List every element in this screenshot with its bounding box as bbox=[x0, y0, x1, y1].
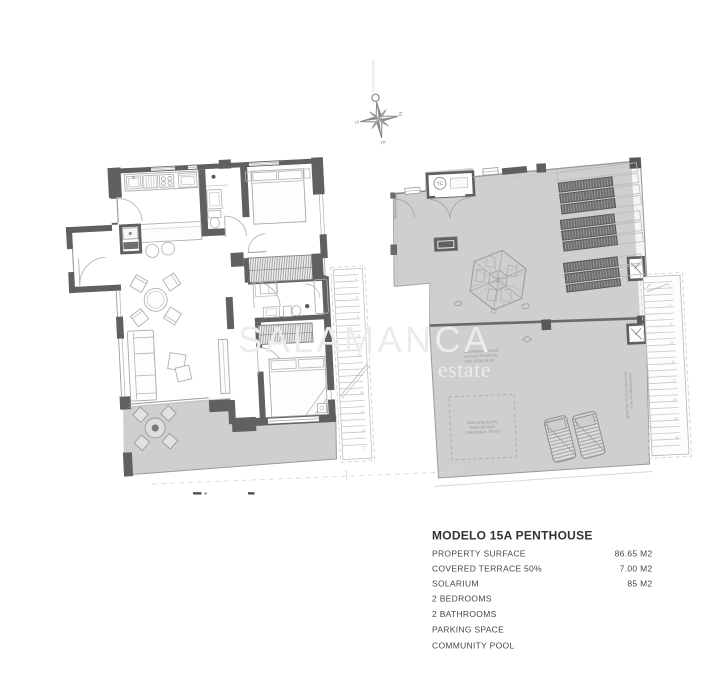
svg-text:COMMUNITY POOL: COMMUNITY POOL bbox=[432, 641, 514, 651]
svg-text:27: 27 bbox=[362, 445, 366, 449]
svg-text:estate: estate bbox=[438, 357, 491, 382]
svg-text:11: 11 bbox=[670, 341, 674, 345]
svg-text:21: 21 bbox=[360, 409, 364, 413]
svg-text:PARKING SPACE: PARKING SPACE bbox=[432, 625, 504, 635]
svg-text:N: N bbox=[396, 112, 402, 117]
svg-text:SALAMANCA: SALAMANCA bbox=[238, 319, 492, 360]
svg-text:MODELO 15A PENTHOUSE: MODELO 15A PENTHOUSE bbox=[432, 529, 593, 543]
svg-text:PROPERTY SURFACE: PROPERTY SURFACE bbox=[432, 549, 526, 559]
svg-text:26: 26 bbox=[675, 435, 679, 439]
svg-text:COVERED TERRACE 50%: COVERED TERRACE 50% bbox=[432, 564, 542, 574]
svg-text:85 M2: 85 M2 bbox=[627, 579, 652, 589]
svg-text:SOLARIUM: SOLARIUM bbox=[432, 579, 479, 589]
svg-text:17: 17 bbox=[672, 378, 676, 382]
svg-text:86.65 M2: 86.65 M2 bbox=[615, 549, 653, 559]
svg-text:2 BEDROOMS: 2 BEDROOMS bbox=[432, 594, 492, 604]
svg-text:2 BATHROOMS: 2 BATHROOMS bbox=[432, 609, 497, 619]
svg-text:7.00 M2: 7.00 M2 bbox=[620, 564, 653, 574]
svg-text:TC: TC bbox=[437, 181, 444, 187]
svg-text:20: 20 bbox=[673, 397, 677, 401]
svg-text:14: 14 bbox=[671, 359, 675, 363]
svg-text:24: 24 bbox=[361, 428, 365, 432]
svg-text:18: 18 bbox=[360, 390, 364, 394]
svg-text:23: 23 bbox=[674, 416, 678, 420]
